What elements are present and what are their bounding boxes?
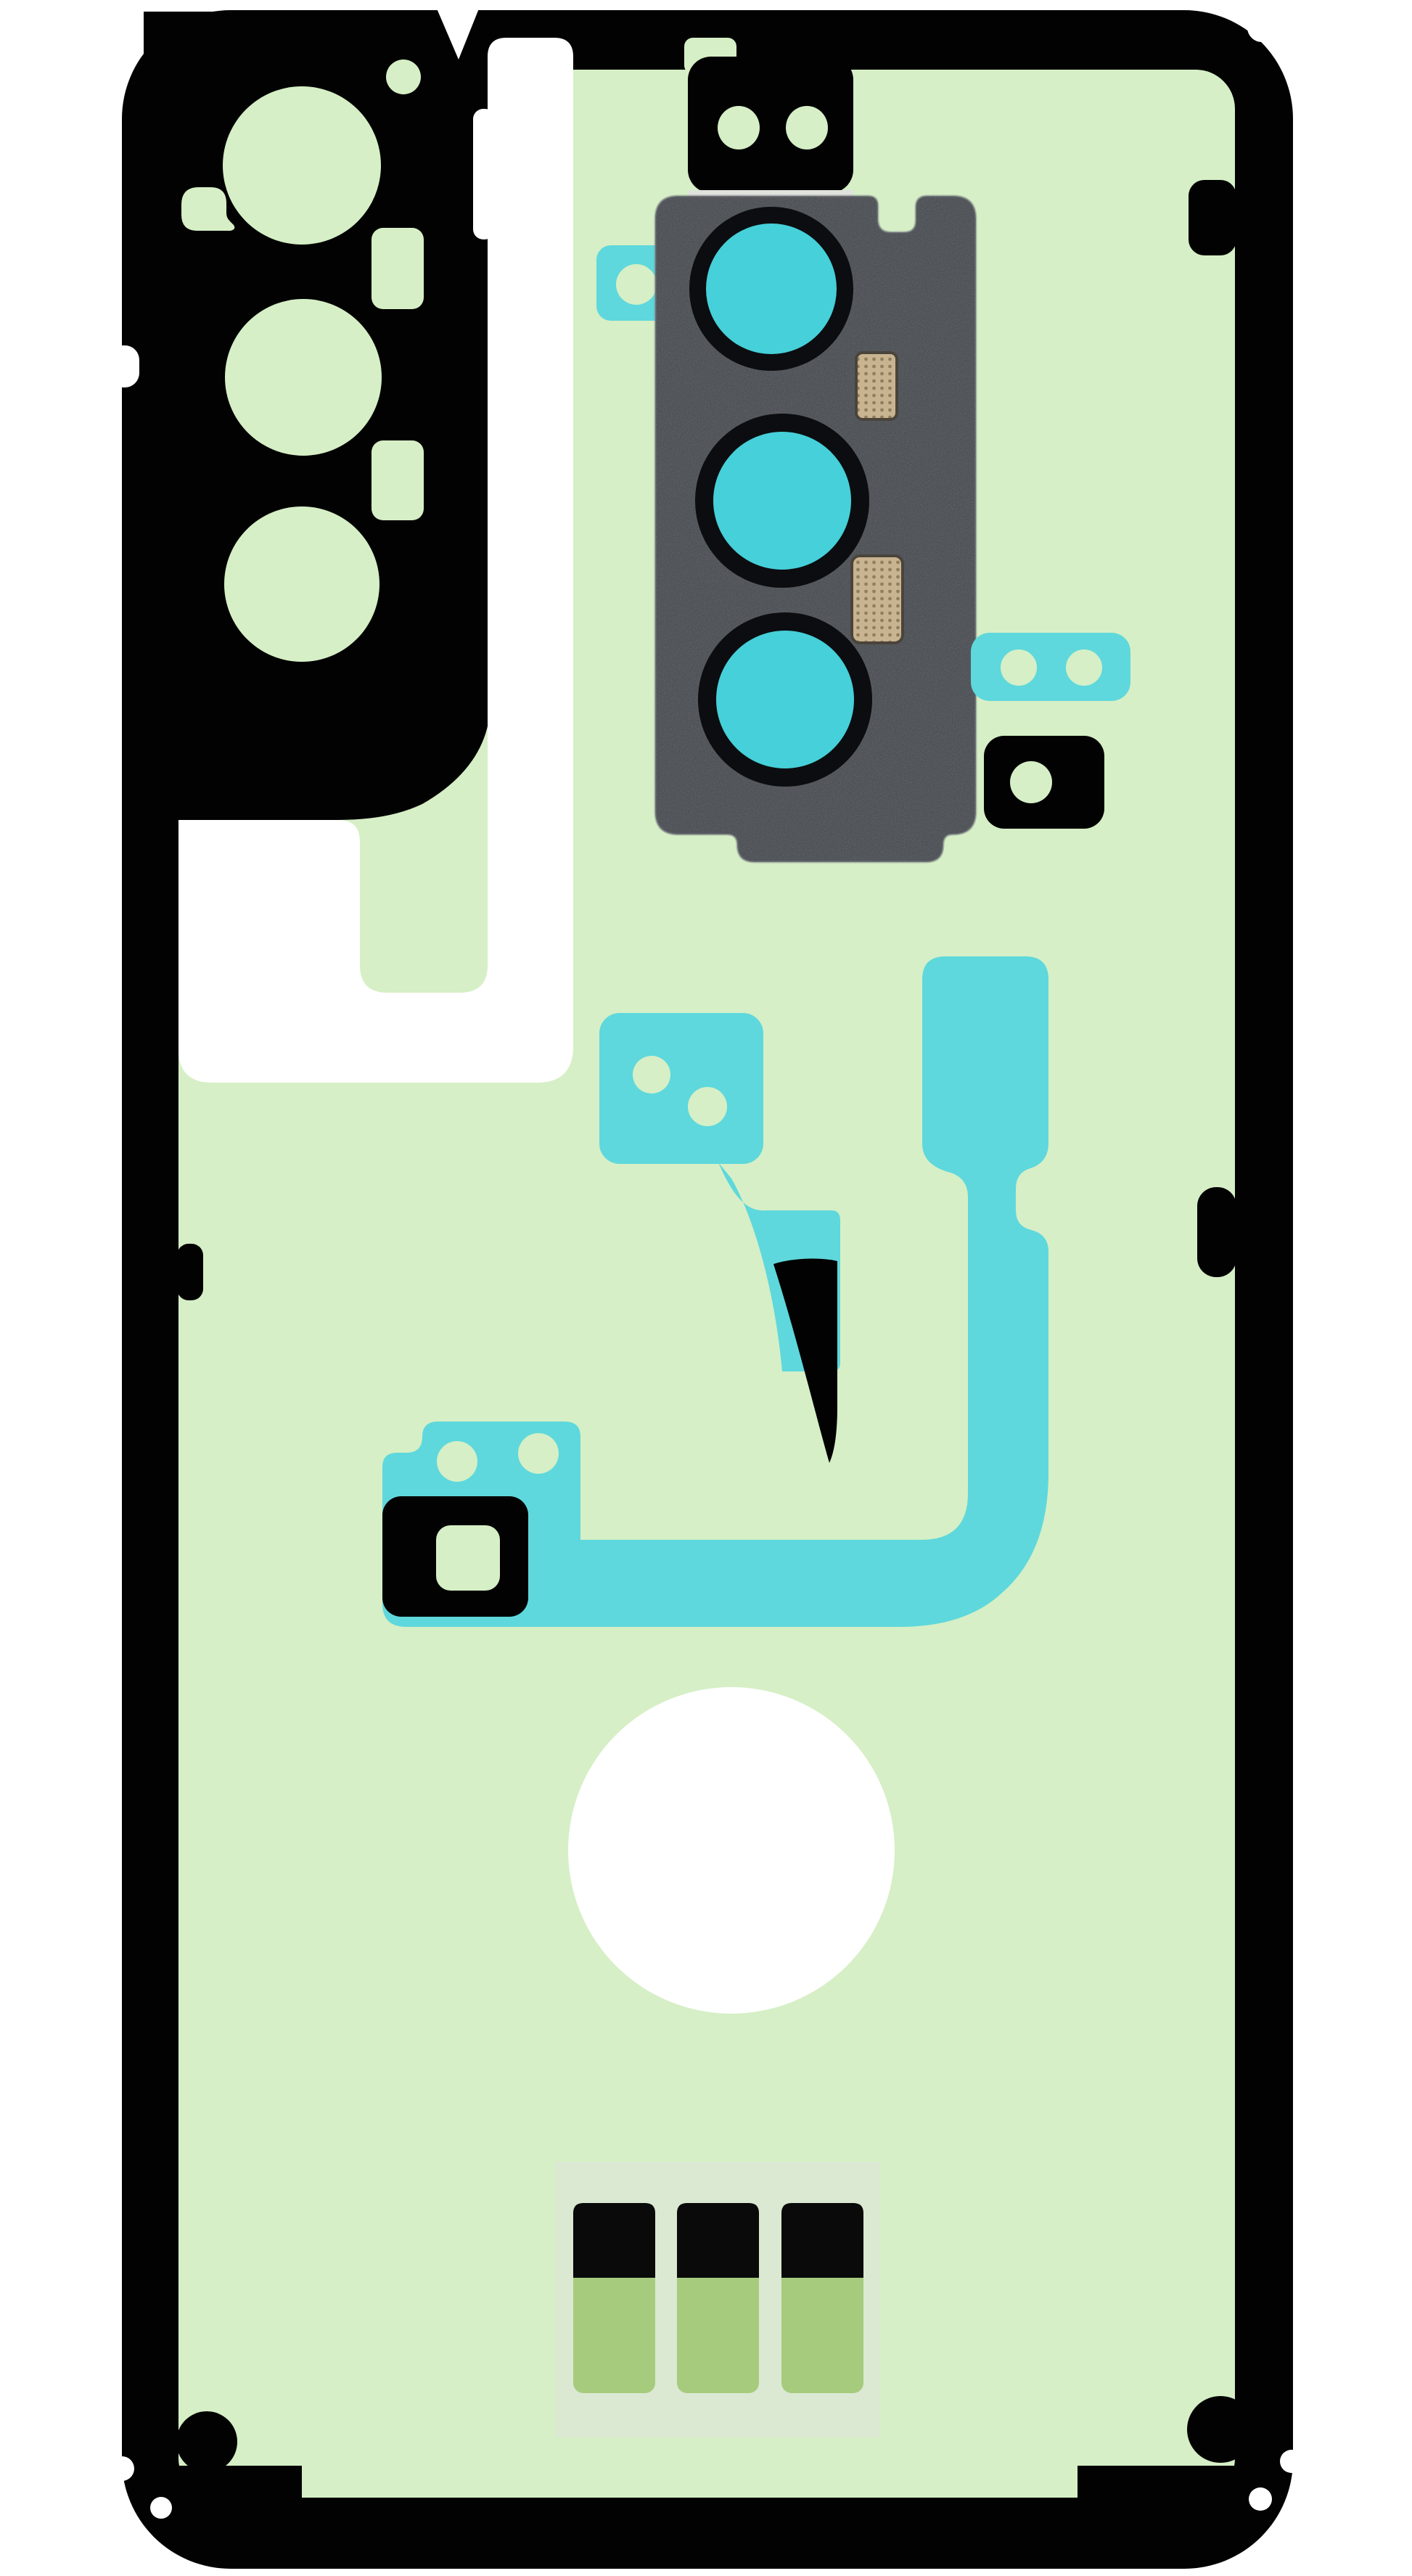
inner-blob-bottom-left: [176, 2411, 237, 2472]
battery-contacts: [573, 2203, 863, 2393]
contact-pad-1-top: [573, 2203, 655, 2278]
inner-step-top-right: [1189, 180, 1236, 255]
top-bracket-hole-2: [786, 106, 828, 149]
notch-top-right-2: [1286, 65, 1309, 89]
inner-bump-right: [1197, 1187, 1236, 1277]
lens-glass-1: [706, 223, 837, 354]
right-strip-hole-2: [1066, 649, 1102, 686]
lens-hole-1: [223, 86, 381, 245]
lens-glass-3: [716, 631, 854, 768]
white-strip-bulge: [473, 109, 495, 239]
adhesive-sticker-photo: [0, 0, 1412, 2576]
flex-lower-hole-1: [437, 1441, 477, 1482]
right-cyan-strip: [971, 633, 1130, 701]
right-strip-hole-1: [1001, 649, 1037, 686]
inner-blob-bottom-right: [1187, 2396, 1254, 2463]
notch-bottom-left-2: [150, 2497, 172, 2519]
camera-slot-hole-2: [372, 440, 424, 520]
mesh-grille-2: [852, 556, 903, 643]
inner-bump-left: [177, 1244, 203, 1300]
top-bracket-hole-1: [718, 106, 760, 149]
lens-hole-3: [224, 506, 379, 662]
inner-step-bottom-left: [178, 2466, 302, 2499]
flex-upper-hole-2: [688, 1087, 727, 1126]
contact-pad-3-top: [781, 2203, 863, 2278]
camera-lenses: [689, 207, 872, 787]
notch-bottom-left-1: [110, 2456, 134, 2481]
notch-bottom-right-1: [1280, 2450, 1303, 2473]
inner-step-bottom-right: [1078, 2466, 1235, 2499]
contact-pad-2-top: [677, 2203, 759, 2278]
camera-slot-hole-1: [372, 228, 424, 309]
lens-glass-2: [713, 432, 851, 570]
notch-bottom-right-2: [1249, 2487, 1272, 2511]
lens-hole-2: [225, 299, 382, 456]
mesh-grille-1: [856, 353, 897, 419]
top-camera-bracket: [688, 57, 853, 193]
notch-left-edge: [109, 345, 139, 387]
right-bracket-hole: [1010, 761, 1052, 803]
flex-lower-hole-2: [518, 1433, 559, 1474]
lower-bracket-hole: [436, 1525, 500, 1591]
bezel-side-tab-hole: [616, 264, 657, 305]
notch-top-right-1: [1247, 13, 1276, 42]
flash-hole: [386, 60, 421, 94]
product-photo-stage: [0, 0, 1412, 2576]
flex-upper-head: [599, 1013, 763, 1164]
flex-upper-hole-1: [633, 1056, 670, 1094]
white-disc-cutout: [568, 1687, 895, 2014]
